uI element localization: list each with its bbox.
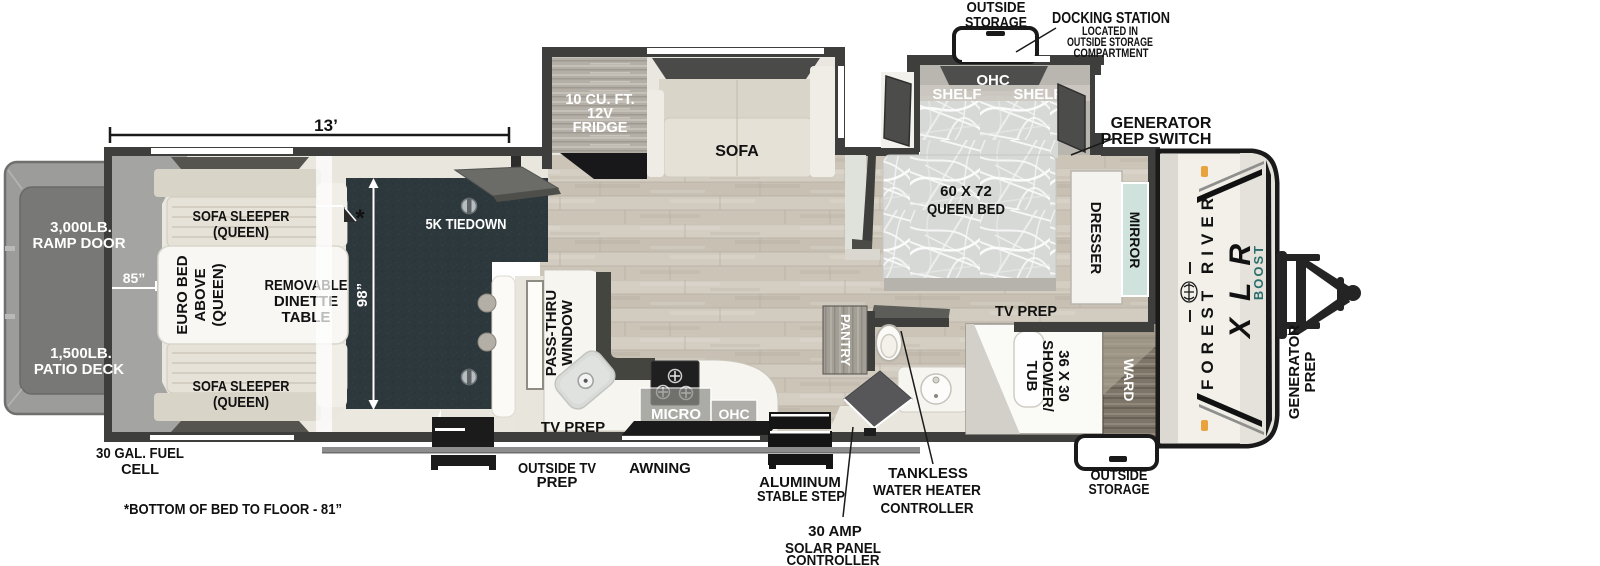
svg-text:STORAGE: STORAGE <box>1089 481 1150 498</box>
svg-text:30 AMP: 30 AMP <box>808 523 862 540</box>
svg-text:FRIDGE: FRIDGE <box>573 120 628 136</box>
svg-text:PREP: PREP <box>1302 352 1319 393</box>
svg-text:QUEEN BED: QUEEN BED <box>927 201 1005 218</box>
svg-text:PASS-THRU: PASS-THRU <box>543 290 560 376</box>
svg-text:SHELF: SHELF <box>932 86 981 103</box>
svg-text:REMOVABLE: REMOVABLE <box>265 277 348 294</box>
svg-text:98”: 98” <box>354 283 371 307</box>
svg-text:TUB: TUB <box>1023 361 1040 392</box>
svg-text:BOOST: BOOST <box>1251 244 1266 300</box>
svg-text:EURO BED: EURO BED <box>174 255 191 334</box>
svg-text:13’: 13’ <box>314 116 338 135</box>
svg-text:5K TIEDOWN: 5K TIEDOWN <box>426 216 507 233</box>
svg-text:TV PREP: TV PREP <box>995 304 1057 320</box>
svg-text:85”: 85” <box>123 270 146 286</box>
svg-text:STABLE STEP: STABLE STEP <box>757 488 845 505</box>
svg-text:PREP: PREP <box>537 474 578 491</box>
svg-text:ABOVE: ABOVE <box>192 268 209 321</box>
svg-text:PREP SWITCH: PREP SWITCH <box>1101 131 1212 148</box>
svg-text:COMPARTMENT: COMPARTMENT <box>1074 48 1149 60</box>
svg-text:(QUEEN): (QUEEN) <box>213 224 269 241</box>
svg-text:MIRROR: MIRROR <box>1127 212 1143 269</box>
svg-text:SHOWER/: SHOWER/ <box>1039 340 1056 413</box>
svg-text:60 X 72: 60 X 72 <box>940 183 992 200</box>
svg-text:DRESSER: DRESSER <box>1087 202 1104 275</box>
svg-text:3,000LB.: 3,000LB. <box>50 219 112 236</box>
svg-text:MICRO: MICRO <box>651 406 701 423</box>
svg-text:36 X 30: 36 X 30 <box>1055 350 1072 402</box>
svg-text:*: * <box>355 205 365 232</box>
svg-text:PATIO DECK: PATIO DECK <box>34 361 124 378</box>
svg-text:CELL: CELL <box>121 462 159 478</box>
svg-text:WATER HEATER: WATER HEATER <box>873 482 981 499</box>
svg-text:SHELF: SHELF <box>1013 86 1062 103</box>
svg-text:WARD: WARD <box>1121 359 1137 402</box>
svg-text:GENERATOR: GENERATOR <box>1111 115 1212 132</box>
svg-text:OHC: OHC <box>718 406 749 422</box>
svg-text:(QUEEN): (QUEEN) <box>210 263 227 326</box>
svg-text:CONTROLLER: CONTROLLER <box>881 500 974 517</box>
svg-text:(QUEEN): (QUEEN) <box>213 394 269 411</box>
svg-text:AWNING: AWNING <box>629 460 691 477</box>
svg-text:*BOTTOM OF BED TO FLOOR - 81”: *BOTTOM OF BED TO FLOOR - 81” <box>124 501 342 518</box>
svg-text:CONTROLLER: CONTROLLER <box>787 552 880 566</box>
svg-text:SOFA SLEEPER: SOFA SLEEPER <box>193 378 290 395</box>
svg-text:GENERATOR: GENERATOR <box>1286 325 1303 420</box>
svg-text:STORAGE: STORAGE <box>965 14 1027 31</box>
svg-text:SOFA SLEEPER: SOFA SLEEPER <box>193 208 290 225</box>
svg-text:WINDOW: WINDOW <box>559 299 576 366</box>
svg-text:1,500LB.: 1,500LB. <box>50 345 112 362</box>
svg-text:DOCKING STATION: DOCKING STATION <box>1052 10 1170 27</box>
svg-text:FOREST RIVER: FOREST RIVER <box>1198 198 1217 390</box>
svg-text:RAMP DOOR: RAMP DOOR <box>32 235 125 252</box>
svg-text:TANKLESS: TANKLESS <box>888 465 968 482</box>
svg-text:PANTRY: PANTRY <box>838 314 853 366</box>
svg-text:30 GAL. FUEL: 30 GAL. FUEL <box>96 446 184 462</box>
svg-text:SOFA: SOFA <box>715 143 759 160</box>
